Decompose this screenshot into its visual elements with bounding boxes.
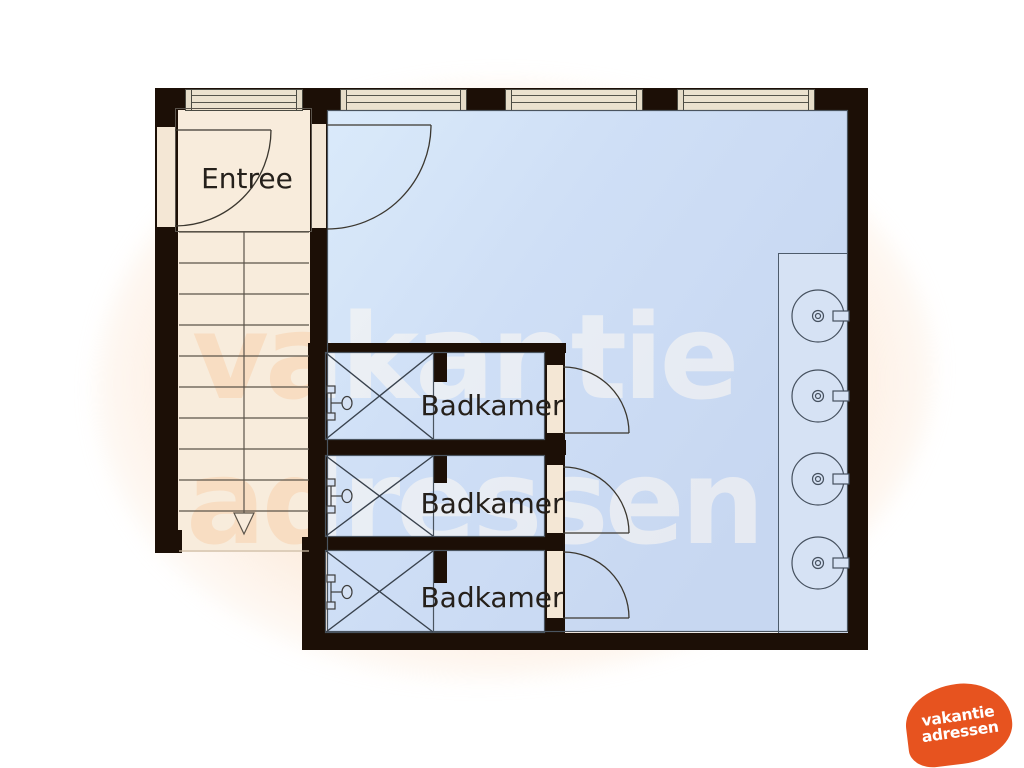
logo-wordmark: vakantie adressen (901, 677, 1017, 768)
room-label-entree: Entree (177, 165, 317, 193)
room-label-badkamer-3: Badkamer (417, 584, 567, 612)
staircase-symbol (179, 232, 309, 551)
floorplan-canvas: vakantie adressen vakantie adressen (0, 0, 1024, 768)
shower-head-icon (327, 386, 352, 609)
stair-down-arrow-icon (234, 513, 254, 534)
plan-linework (0, 0, 1024, 768)
brand-logo: vakantie adressen (906, 684, 1012, 764)
door-swing (175, 125, 629, 618)
room-label-badkamer-1: Badkamer (417, 392, 567, 420)
sink-icon (792, 290, 849, 589)
room-label-badkamer-2: Badkamer (417, 490, 567, 518)
